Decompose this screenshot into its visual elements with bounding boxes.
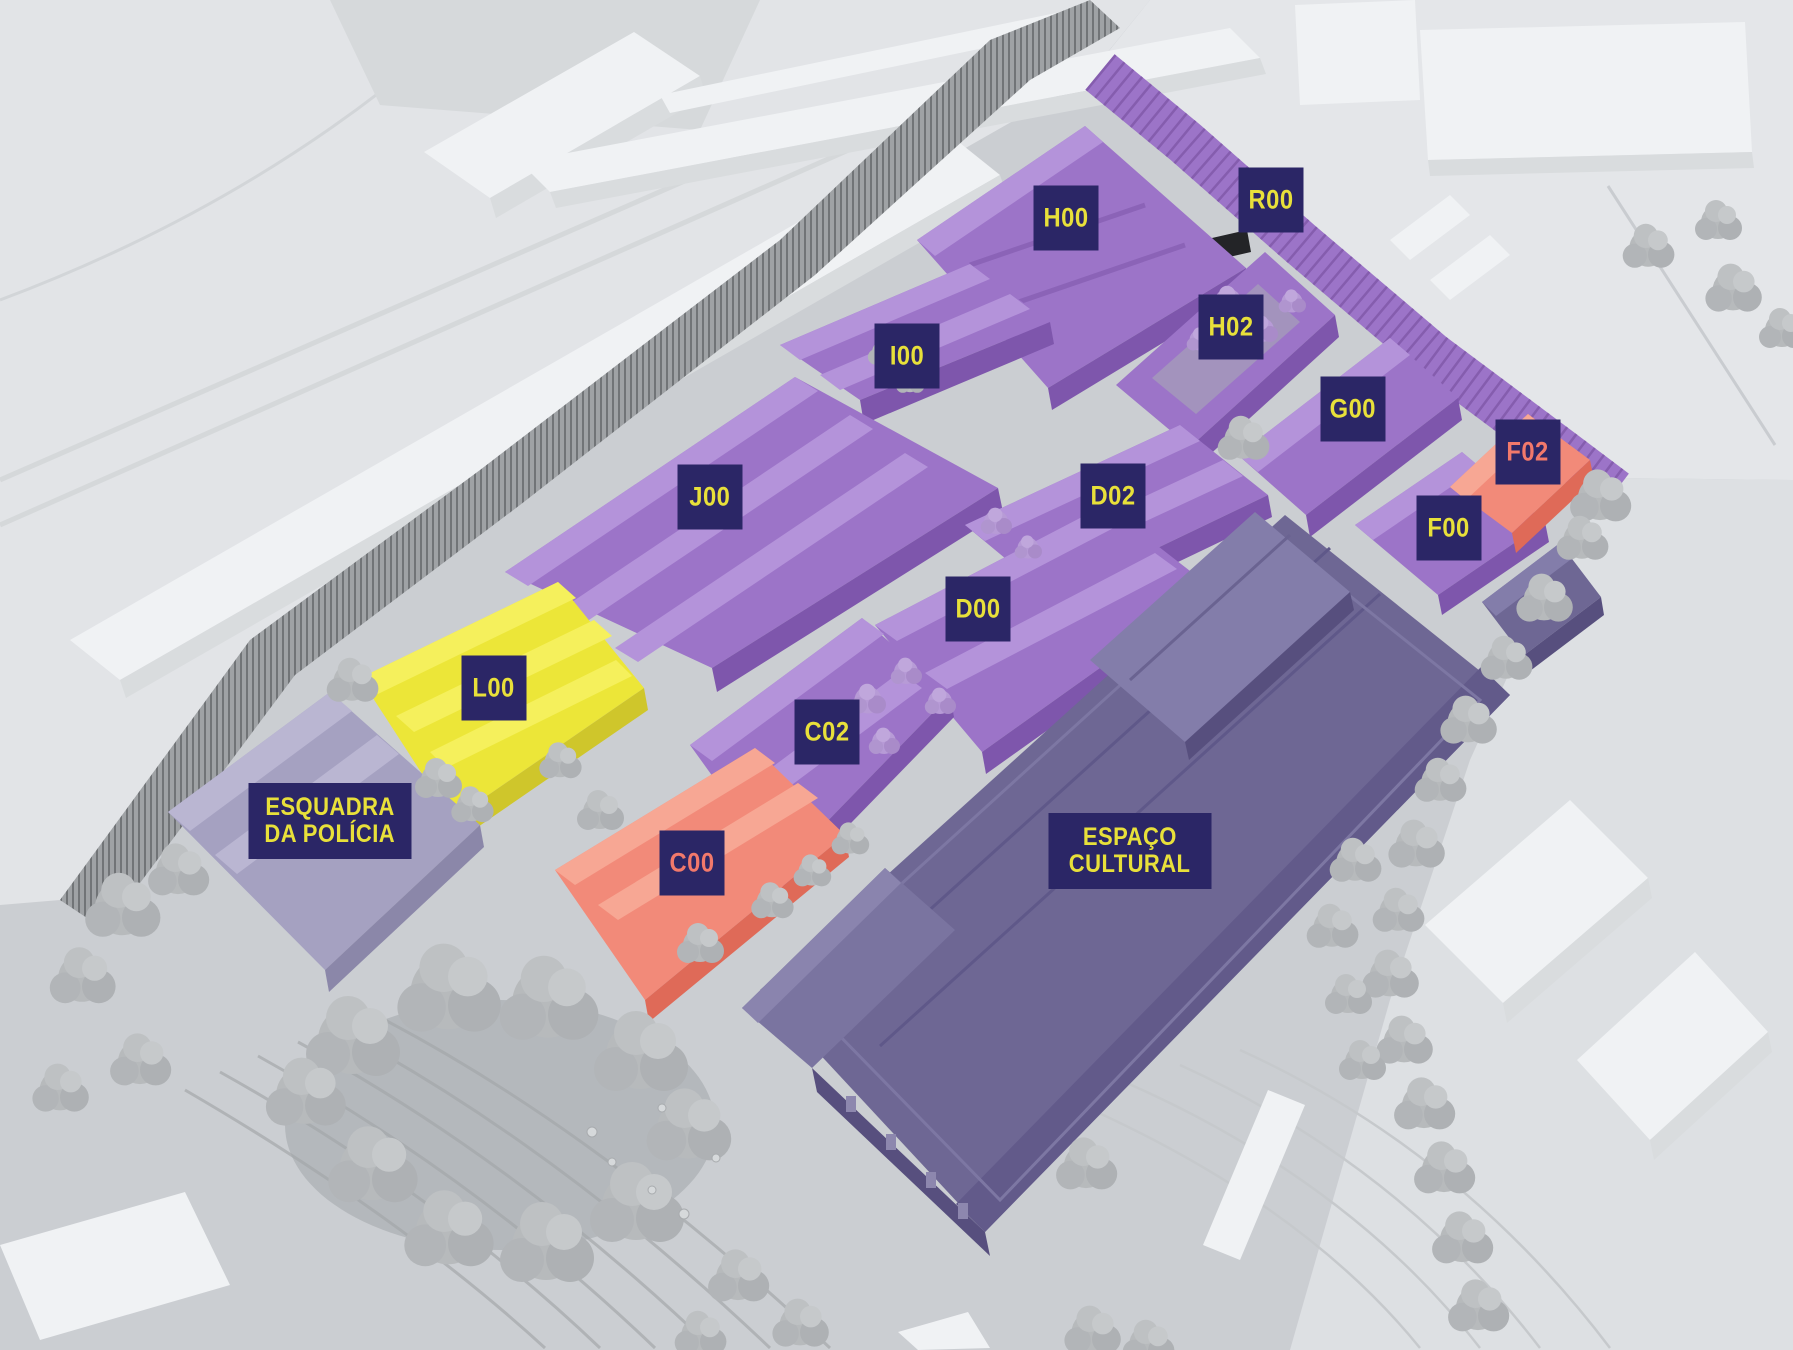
building-label-r00[interactable]: R00 [1239,168,1304,233]
building-label-esquadra-policia[interactable]: ESQUADRA DA POLÍCIA [249,783,412,859]
building-label-f02[interactable]: F02 [1496,420,1561,485]
building-label-c02[interactable]: C02 [795,700,860,765]
label-text: H00 [1044,204,1089,233]
building-label-d02[interactable]: D02 [1081,464,1146,529]
building-label-espaco-cultural[interactable]: ESPAÇO CULTURAL [1049,813,1212,889]
label-text-line1: ESPAÇO [1083,824,1177,851]
label-text: J00 [690,483,731,512]
building-label-f00[interactable]: F00 [1417,496,1482,561]
context-box-topright [1420,22,1752,160]
label-text: C00 [670,849,715,878]
label-text: I00 [890,342,924,371]
label-text: H02 [1209,313,1254,342]
label-text-line2: CULTURAL [1069,851,1191,878]
context-box-topright-2 [1295,0,1420,105]
label-text: R00 [1249,186,1294,215]
building-label-j00[interactable]: J00 [678,465,743,530]
building-label-g00[interactable]: G00 [1321,377,1386,442]
masterplan-canvas: H00 R00 H02 I00 G00 F02 F00 J00 D02 D00 … [0,0,1793,1350]
building-label-c00[interactable]: C00 [660,831,725,896]
label-text: F00 [1428,514,1470,543]
label-text: F02 [1507,438,1549,467]
building-label-h02[interactable]: H02 [1199,295,1264,360]
label-text: L00 [473,674,515,703]
label-text: D02 [1091,482,1136,511]
label-text: D00 [956,595,1001,624]
building-label-d00[interactable]: D00 [946,577,1011,642]
building-label-l00[interactable]: L00 [462,656,527,721]
label-text: G00 [1330,395,1376,424]
label-text: C02 [805,718,850,747]
building-label-i00[interactable]: I00 [875,324,940,389]
label-text-line1: ESQUADRA [265,794,394,821]
label-text-line2: DA POLÍCIA [265,821,396,848]
building-label-h00[interactable]: H00 [1034,186,1099,251]
